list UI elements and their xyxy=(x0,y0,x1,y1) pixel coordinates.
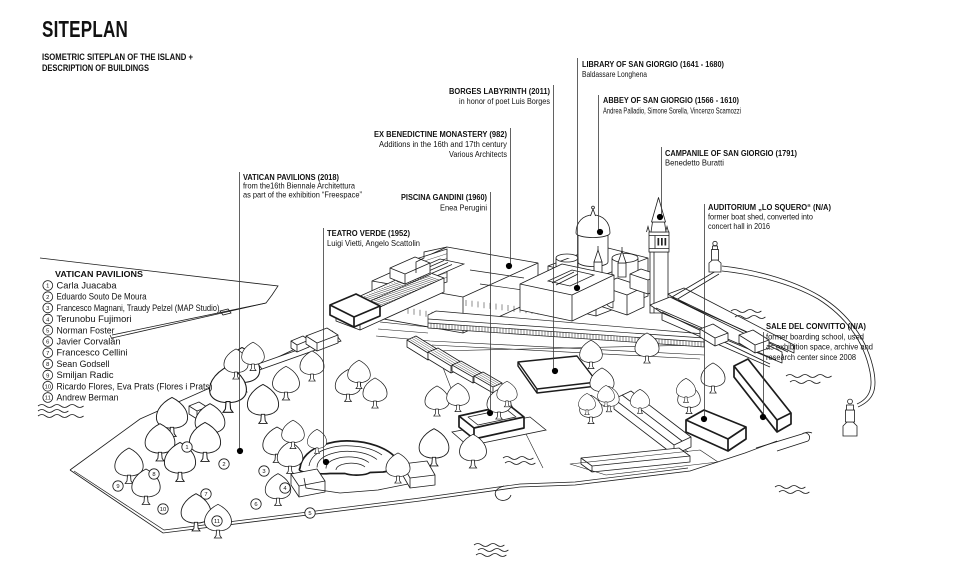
svg-text:Eduardo Souto De Moura: Eduardo Souto De Moura xyxy=(57,292,147,302)
svg-text:former boarding school, used: former boarding school, used xyxy=(766,331,864,341)
svg-text:11: 11 xyxy=(214,519,220,525)
svg-text:concert hall in 2016: concert hall in 2016 xyxy=(708,221,770,231)
svg-text:5: 5 xyxy=(308,511,311,517)
svg-text:TEATRO VERDE (1952): TEATRO VERDE (1952) xyxy=(327,228,410,238)
svg-text:CAMPANILE OF SAN GIORGIO (1791: CAMPANILE OF SAN GIORGIO (1791) xyxy=(665,148,797,158)
svg-text:Francesco Magnani, Traudy Pelz: Francesco Magnani, Traudy Pelzel (MAP St… xyxy=(57,303,220,313)
svg-text:11: 11 xyxy=(45,396,51,402)
svg-text:10: 10 xyxy=(160,507,166,513)
svg-text:Javier Corvalán: Javier Corvalán xyxy=(57,337,121,347)
svg-text:as exhibition space, archive a: as exhibition space, archive and xyxy=(766,342,873,352)
svg-text:Carla Juacaba: Carla Juacaba xyxy=(57,281,117,291)
svg-text:Terunobu Fujimori: Terunobu Fujimori xyxy=(57,314,132,324)
svg-text:Benedetto Buratti: Benedetto Buratti xyxy=(665,158,724,168)
svg-text:1: 1 xyxy=(185,445,188,451)
svg-text:AUDITORIUM „LO SQUERO“ (N/A): AUDITORIUM „LO SQUERO“ (N/A) xyxy=(708,202,831,212)
svg-text:5: 5 xyxy=(46,329,49,335)
svg-text:8: 8 xyxy=(152,472,155,478)
svg-text:ABBEY OF SAN GIORGIO (1566 - 1: ABBEY OF SAN GIORGIO (1566 - 1610) xyxy=(603,95,739,105)
svg-text:7: 7 xyxy=(46,351,49,357)
svg-text:in honor of poet Luis Borges: in honor of poet Luis Borges xyxy=(459,96,550,106)
svg-text:7: 7 xyxy=(204,492,207,498)
svg-text:research center since 2008: research center since 2008 xyxy=(766,352,856,362)
svg-text:2: 2 xyxy=(222,462,225,468)
svg-text:ISOMETRIC SITEPLAN OF THE ISLA: ISOMETRIC SITEPLAN OF THE ISLAND + xyxy=(42,52,193,62)
svg-text:Andrea Palladio, Simone Sorell: Andrea Palladio, Simone Sorella, Vincenz… xyxy=(603,106,741,116)
svg-text:BORGES LABYRINTH (2011): BORGES LABYRINTH (2011) xyxy=(449,86,550,96)
svg-text:VATICAN PAVILIONS: VATICAN PAVILIONS xyxy=(55,269,143,279)
svg-text:as part of the exhibition “Fre: as part of the exhibition “Freespace” xyxy=(243,189,362,199)
svg-text:10: 10 xyxy=(45,385,51,391)
svg-text:PISCINA GANDINI (1960): PISCINA GANDINI (1960) xyxy=(401,192,487,202)
svg-text:1: 1 xyxy=(46,284,49,290)
svg-text:Sean Godsell: Sean Godsell xyxy=(57,359,110,369)
svg-text:2: 2 xyxy=(46,295,49,301)
svg-text:3: 3 xyxy=(262,469,265,475)
svg-text:8: 8 xyxy=(46,362,49,368)
svg-text:9: 9 xyxy=(46,373,49,379)
svg-text:Ricardo Flores, Eva Prats (Flo: Ricardo Flores, Eva Prats (Flores i Prat… xyxy=(57,381,213,391)
svg-text:Smiljan Radic: Smiljan Radic xyxy=(57,370,115,380)
svg-text:Additions in the 16th and 17th: Additions in the 16th and 17th century xyxy=(379,139,508,149)
svg-text:9: 9 xyxy=(116,484,119,490)
svg-text:3: 3 xyxy=(46,306,49,312)
svg-text:Norman Foster: Norman Foster xyxy=(57,325,115,335)
svg-text:Luigi Vietti, Angelo Scattolin: Luigi Vietti, Angelo Scattolin xyxy=(327,238,420,248)
svg-text:Baldassare Longhena: Baldassare Longhena xyxy=(582,69,647,79)
svg-text:DESCRIPTION OF BUILDINGS: DESCRIPTION OF BUILDINGS xyxy=(42,63,149,73)
svg-text:6: 6 xyxy=(46,340,49,346)
svg-text:SITEPLAN: SITEPLAN xyxy=(42,16,128,42)
svg-text:EX BENEDICTINE MONASTERY (982): EX BENEDICTINE MONASTERY (982) xyxy=(374,129,507,139)
svg-text:LIBRARY OF SAN GIORGIO (1641 -: LIBRARY OF SAN GIORGIO (1641 - 1680) xyxy=(582,59,724,69)
svg-text:Enea Perugini: Enea Perugini xyxy=(440,203,487,213)
svg-text:former boat shed, converted in: former boat shed, converted into xyxy=(708,212,813,222)
svg-text:SALE DEL CONVITTO (N/A): SALE DEL CONVITTO (N/A) xyxy=(766,321,866,331)
svg-text:Andrew Berman: Andrew Berman xyxy=(57,393,119,403)
svg-text:Various Architects: Various Architects xyxy=(449,149,507,159)
svg-text:6: 6 xyxy=(254,502,257,508)
svg-text:Francesco Cellini: Francesco Cellini xyxy=(57,348,128,358)
